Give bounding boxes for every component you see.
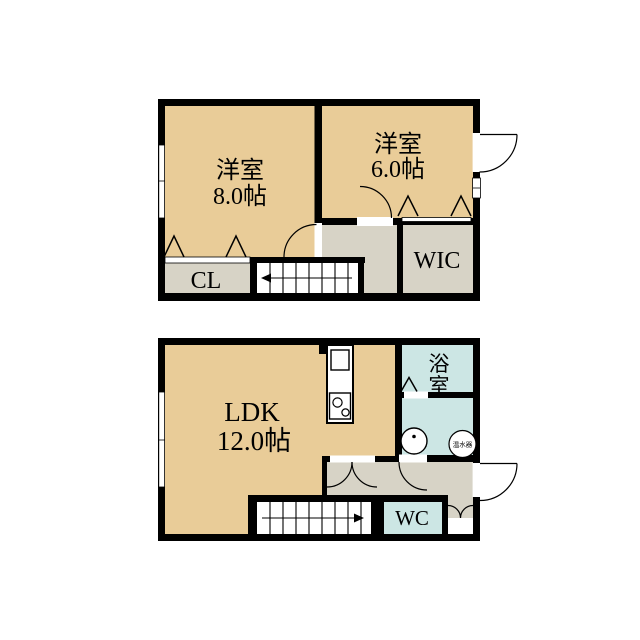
bathroom-label-bottom: 室 [429, 374, 450, 398]
balcony-door-arc [480, 135, 518, 173]
bedroom-8-area: 8.0帖 [213, 183, 267, 210]
kitchen-stove-icon [330, 393, 351, 419]
upper-floor-plan: 洋室 8.0帖 洋室 6.0帖 CL WIC [158, 99, 517, 301]
bedroom-8-door-opening [315, 223, 323, 257]
bedroom-6-label: 洋室 [374, 131, 422, 158]
ldk-room-bottom [165, 495, 248, 534]
washbasin-icon [401, 428, 427, 454]
bedroom-8-label: 洋室 [216, 157, 264, 184]
water-heater-icon: 温水器 [449, 431, 476, 458]
window-lower-left [159, 392, 165, 487]
lower-floor-plan: 温水器 LDK 12.0帖 浴 室 WC [158, 338, 517, 541]
entrance-floor [448, 518, 473, 534]
bedroom-6-door-opening [357, 217, 393, 226]
entrance-door-arc [480, 464, 517, 501]
ldk-door-opening [330, 456, 375, 463]
lower-staircase [257, 502, 371, 534]
bedroom-6-area: 6.0帖 [371, 156, 425, 183]
ldk-label: LDK [224, 397, 280, 427]
kitchen-counter [327, 345, 353, 423]
bathroom-door-opening [404, 392, 428, 399]
wic-label: WIC [414, 248, 461, 274]
bathroom-label-top: 浴 [429, 352, 450, 376]
balcony-door-opening [473, 133, 481, 172]
cl-folding-track [165, 257, 250, 263]
kitchen-sink-icon [331, 350, 349, 370]
washroom-door-opening [399, 455, 427, 463]
wic-folding-track [402, 218, 471, 222]
entrance-door-opening [473, 463, 481, 497]
wc-label: WC [395, 506, 429, 530]
floor-plan-drawing: 洋室 8.0帖 洋室 6.0帖 CL WIC [0, 0, 640, 640]
floor-plan-canvas: 洋室 8.0帖 洋室 6.0帖 CL WIC [0, 0, 640, 640]
ldk-area: 12.0帖 [217, 426, 291, 456]
ldk-room-lower [165, 462, 322, 495]
water-heater-label: 温水器 [453, 440, 473, 449]
window-upper-left [159, 145, 165, 218]
cl-label: CL [191, 268, 222, 294]
upper-staircase [257, 263, 358, 293]
